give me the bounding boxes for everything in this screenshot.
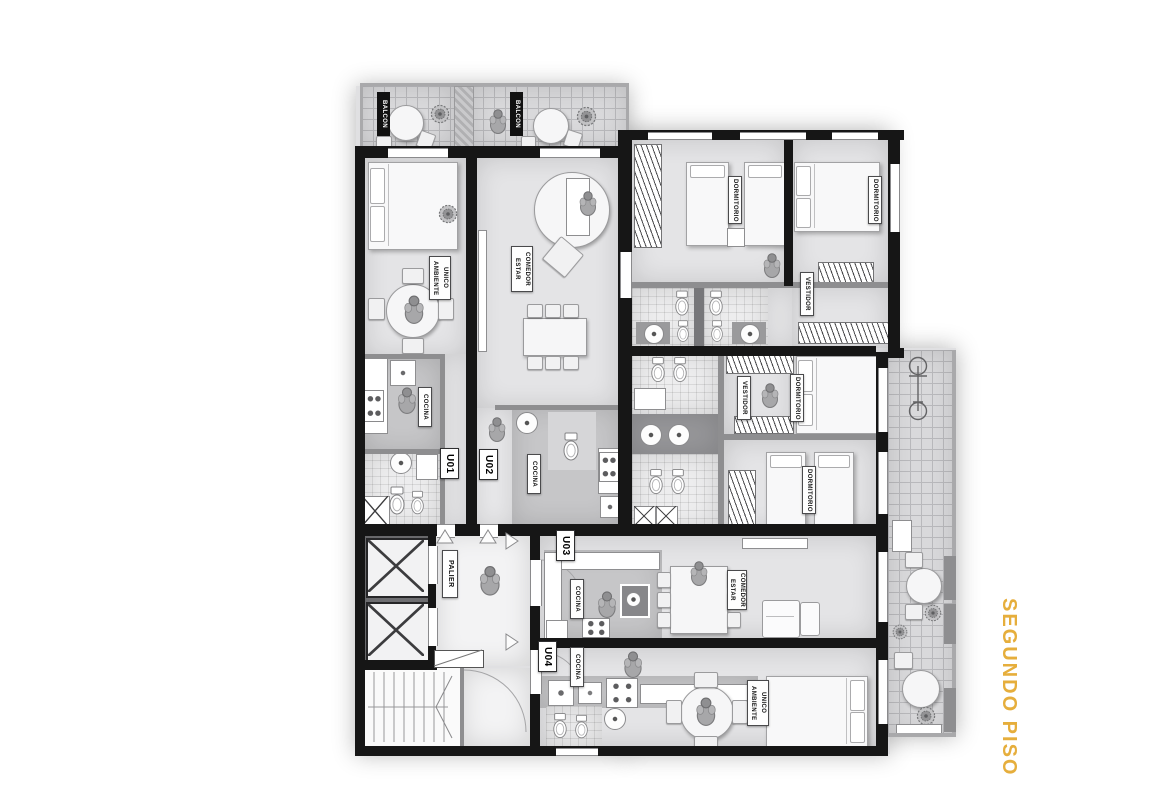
stairs <box>364 668 462 746</box>
pillow <box>850 680 865 711</box>
wall <box>618 346 876 356</box>
wall <box>466 158 477 528</box>
chair <box>527 356 543 370</box>
island-sink <box>626 592 641 607</box>
bedroom-hall-floor <box>768 288 792 348</box>
window <box>890 164 900 232</box>
pillow <box>370 168 385 204</box>
bath-divider <box>694 288 704 348</box>
sliding-door <box>540 148 600 158</box>
tv-unit <box>742 538 808 549</box>
chair <box>545 304 561 318</box>
chair <box>732 700 748 724</box>
balcony-rail-left <box>360 83 363 148</box>
window <box>878 660 888 724</box>
balcony-divider <box>454 86 474 149</box>
chair <box>666 700 682 724</box>
chair <box>563 304 579 318</box>
room-label-cocina-u03: COCINA <box>570 579 584 619</box>
chair <box>657 592 671 608</box>
chair <box>905 604 923 620</box>
room-label-cocina-u02: COCINA <box>527 454 541 494</box>
room-label-balcon-1: BALCON <box>377 92 390 136</box>
unit-label-u04: U04 <box>538 641 557 672</box>
room-label-ambiente-unico-u04: AMBIENTE UNICO <box>747 680 769 726</box>
partition <box>364 354 440 359</box>
oven-dial <box>604 708 626 730</box>
wardrobe <box>726 354 794 374</box>
terrace-door <box>878 552 888 622</box>
chair <box>657 572 671 588</box>
stove <box>582 618 610 638</box>
bed-line <box>816 358 817 430</box>
kitchen-sink <box>600 496 620 518</box>
partition <box>495 405 619 410</box>
terrace-rail-bottom <box>888 733 956 737</box>
room-label-dormitorio-2: DORMITORIO <box>868 176 882 224</box>
wall <box>784 140 793 286</box>
chair <box>657 612 671 628</box>
kitchen-sink <box>390 360 416 386</box>
bed-line <box>846 678 847 744</box>
unit-label-u03: U03 <box>556 530 575 561</box>
shower-drain <box>668 424 690 446</box>
partition <box>440 354 445 530</box>
room-label-cocina-u01: COCINA <box>418 387 432 427</box>
room-label-vestidor-2: VESTIDOR <box>737 376 751 420</box>
partition <box>632 282 888 288</box>
pillow <box>796 166 811 196</box>
partition <box>724 434 888 440</box>
window <box>878 368 888 432</box>
vanity <box>634 388 666 410</box>
chair <box>694 672 718 688</box>
wall <box>618 130 632 530</box>
page-title: SEGUNDO PISO <box>996 598 1020 780</box>
room-label-dormitorio-4: DORMITORIO <box>802 466 816 514</box>
sofa-line <box>766 616 794 617</box>
shower-drain <box>640 424 662 446</box>
shower-drain <box>644 324 664 344</box>
chair <box>563 356 579 370</box>
room-label-palier: PALIER <box>442 550 458 598</box>
partition <box>364 449 440 454</box>
chair <box>894 652 913 669</box>
terrace-table <box>906 568 942 604</box>
armchair <box>800 602 820 636</box>
pillow <box>850 712 865 743</box>
terrace-planter-2 <box>944 604 956 644</box>
shower-drain <box>740 324 760 344</box>
stove <box>364 390 384 422</box>
terrace-table <box>902 670 940 708</box>
wall <box>888 348 904 358</box>
terrace-rail-right <box>952 350 956 737</box>
pillow <box>370 206 385 242</box>
side-table <box>892 520 912 552</box>
room-label-dormitorio-3: DORMITORIO <box>790 374 804 422</box>
shelf <box>478 230 487 352</box>
elevator-door <box>428 608 438 646</box>
door-opening <box>530 560 542 606</box>
stove <box>606 678 638 708</box>
chair <box>368 298 385 320</box>
window <box>740 132 806 140</box>
wardrobe <box>818 262 874 284</box>
wardrobe <box>728 470 756 532</box>
unit-label-u01: U01 <box>440 448 459 479</box>
room-label-dormitorio-1: DORMITORIO <box>728 176 742 224</box>
bed-line <box>814 164 815 228</box>
chair <box>545 356 561 370</box>
floor-plan: BALCON BALCON AMBIENTE UNICO ESTAR COMED… <box>0 0 1170 785</box>
wall <box>355 660 437 670</box>
fridge <box>546 620 568 640</box>
terrace-planter-1 <box>944 556 956 600</box>
pillow <box>796 198 811 228</box>
room-label-cocina-u04: COCINA <box>570 647 584 687</box>
sofa <box>762 600 800 638</box>
chair <box>905 552 923 568</box>
washing-machine <box>390 452 412 474</box>
window <box>556 748 598 756</box>
chair <box>527 304 543 318</box>
sliding-door <box>388 148 448 158</box>
pillow <box>818 455 850 468</box>
terrace-planter-3 <box>944 688 956 732</box>
window <box>648 132 712 140</box>
pillow <box>690 165 725 178</box>
wall <box>355 746 888 756</box>
window <box>878 452 888 514</box>
chair <box>402 268 424 284</box>
pillow <box>770 455 802 468</box>
room-label-vestidor-1: VESTIDOR <box>800 272 814 316</box>
stove <box>599 452 619 482</box>
partition <box>718 352 724 530</box>
room-label-ambiente-unico-u01: AMBIENTE UNICO <box>429 256 451 300</box>
chair <box>438 298 454 320</box>
room-label-estar-comedor-u02: ESTAR COMEDOR <box>511 246 533 292</box>
chair <box>727 612 741 628</box>
nightstand <box>727 228 745 247</box>
window <box>832 132 878 140</box>
u01-corridor-floor <box>445 354 466 530</box>
room-label-estar-comedor-u03: ESTAR COMEDOR <box>727 570 747 610</box>
door-opening <box>620 252 632 298</box>
chair <box>402 338 424 354</box>
vanity <box>416 454 438 480</box>
bed-line <box>388 164 389 246</box>
unit-label-u02: U02 <box>479 449 498 480</box>
wardrobe <box>634 144 662 248</box>
elevator-door <box>428 546 438 584</box>
washing-machine <box>516 412 538 434</box>
partition <box>460 668 464 746</box>
room-label-balcon-2: BALCON <box>510 92 523 136</box>
dining-table <box>523 318 587 356</box>
wardrobe <box>798 322 892 344</box>
balcony-rail-top <box>360 83 628 86</box>
pillow <box>748 165 782 178</box>
